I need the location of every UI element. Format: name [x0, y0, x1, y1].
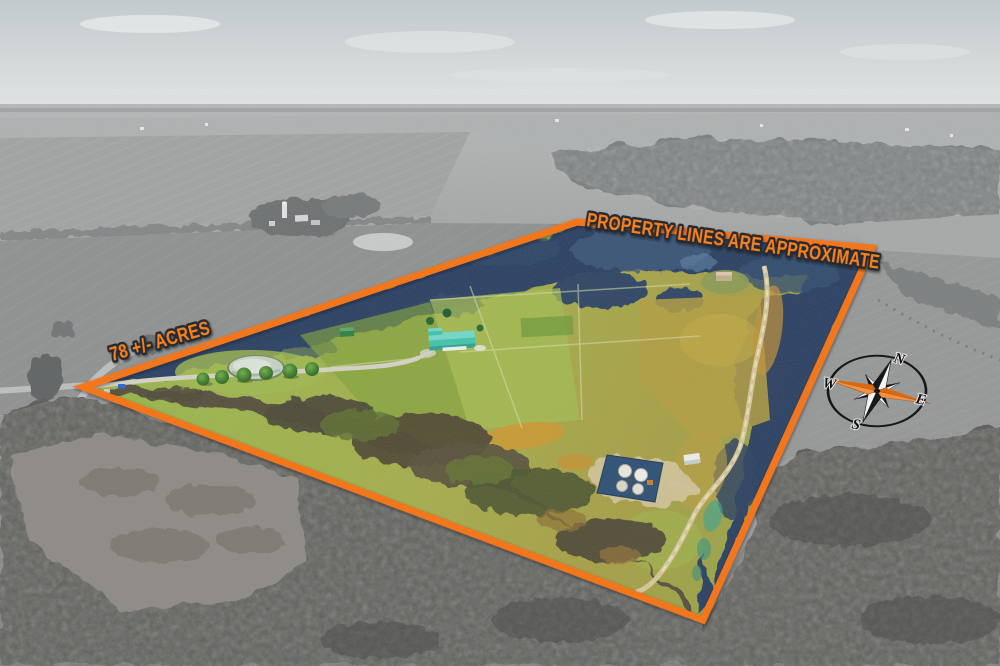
- aerial-property-photo: PROPERTY LINES ARE APPROXIMATE 78 +/- AC…: [0, 0, 1000, 666]
- photo-grain: [0, 95, 1000, 666]
